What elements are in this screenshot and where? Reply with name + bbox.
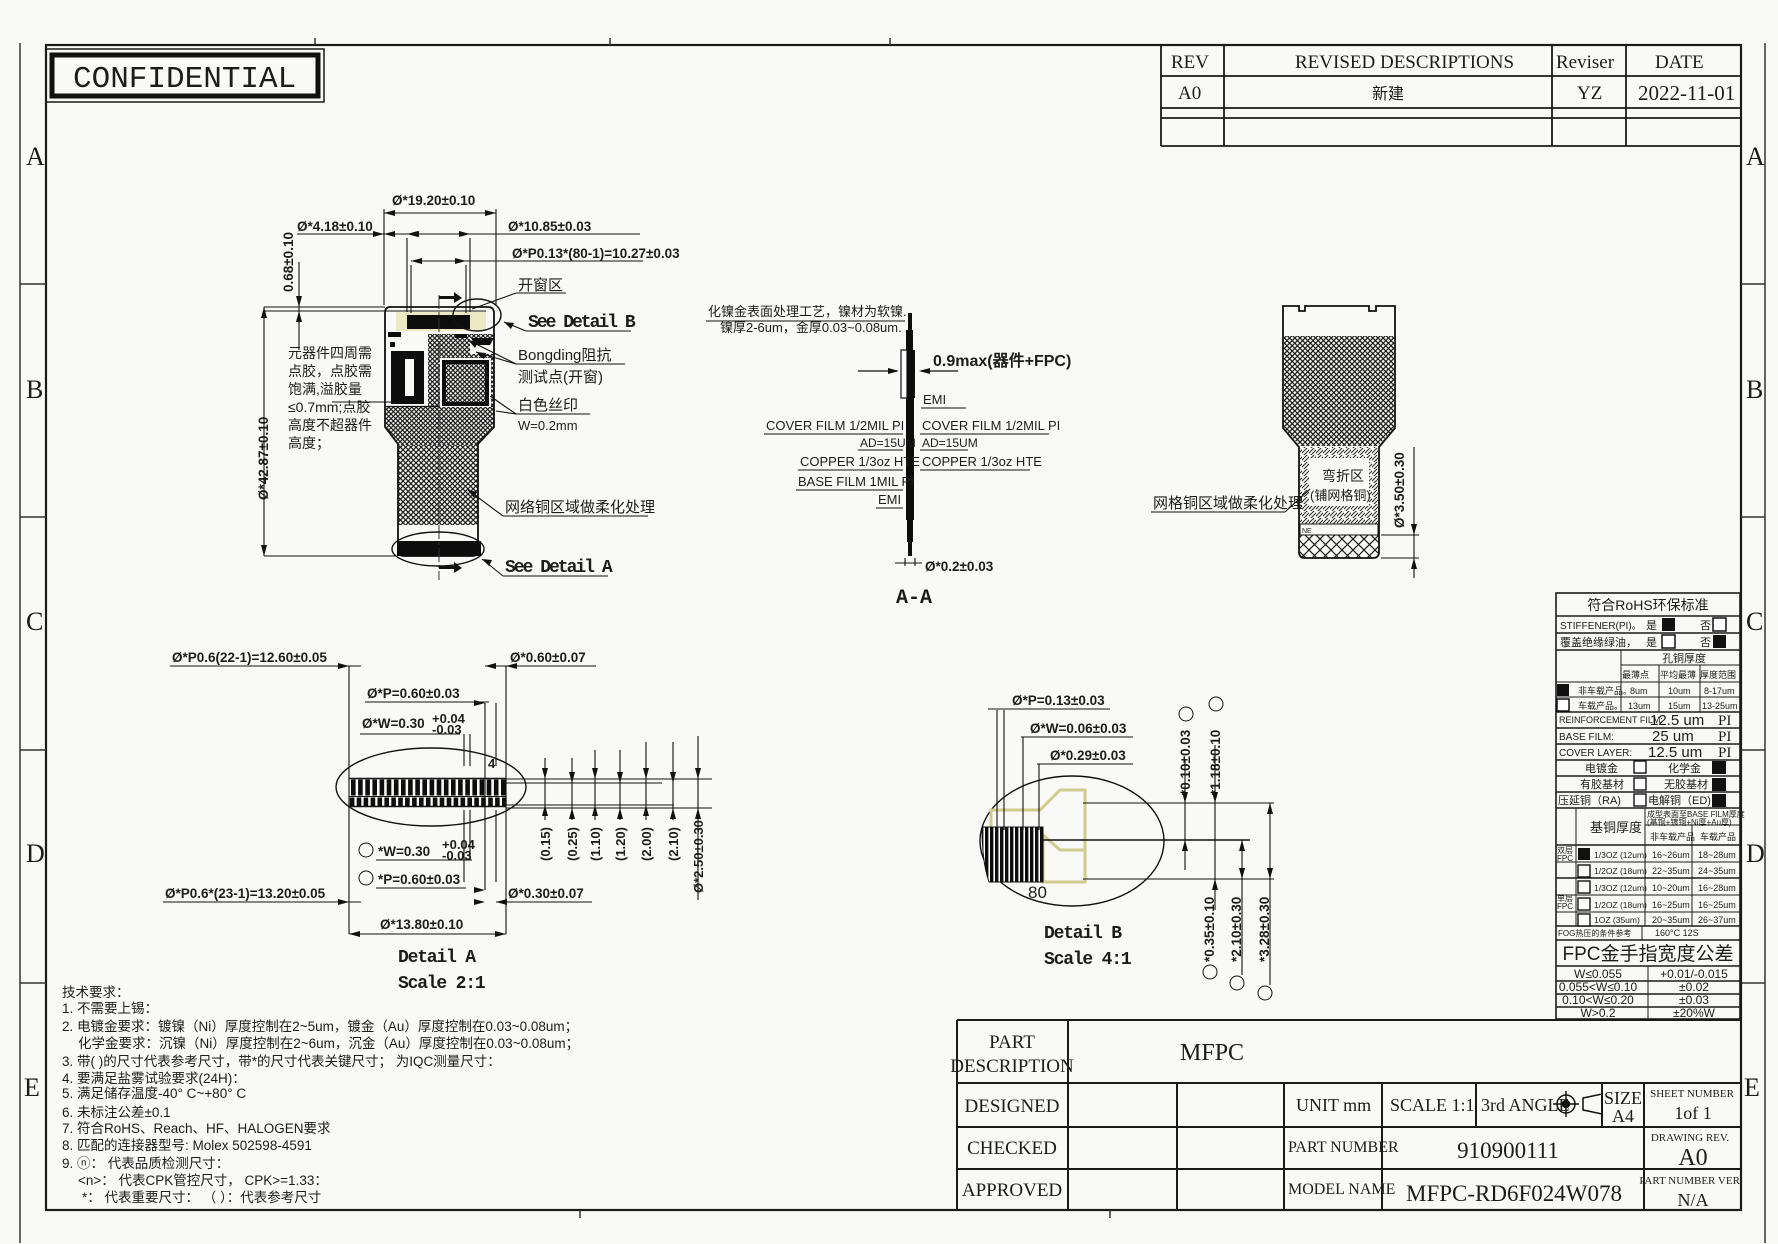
svg-text:10~20um: 10~20um bbox=[1652, 883, 1690, 893]
svg-text:DRAWING REV.: DRAWING REV. bbox=[1651, 1132, 1730, 1144]
svg-text:Ø*W=0.30: Ø*W=0.30 bbox=[362, 716, 425, 731]
svg-text:COPPER 1/3oz HTE: COPPER 1/3oz HTE bbox=[922, 454, 1042, 469]
svg-text:YZ: YZ bbox=[1577, 83, 1602, 104]
svg-text:9. ⓝ： 代表品质检测尺寸：: 9. ⓝ： 代表品质检测尺寸： bbox=[62, 1156, 229, 1171]
svg-text:测试点(开窗): 测试点(开窗) bbox=[518, 368, 603, 386]
svg-text:是: 是 bbox=[1646, 619, 1657, 632]
svg-text:*0.35±0.10: *0.35±0.10 bbox=[1202, 897, 1217, 962]
svg-text:Scale 2:1: Scale 2:1 bbox=[398, 974, 486, 994]
svg-text:12.5 um: 12.5 um bbox=[1650, 712, 1704, 729]
svg-text:See Detail B: See Detail B bbox=[528, 313, 636, 333]
svg-text:Detail A: Detail A bbox=[398, 948, 476, 968]
svg-text:否: 否 bbox=[1700, 637, 1711, 649]
svg-text:电解铜（ED): 电解铜（ED) bbox=[1648, 793, 1711, 807]
svg-text:See Detail A: See Detail A bbox=[505, 558, 613, 578]
svg-text:Ø*0.60±0.07: Ø*0.60±0.07 bbox=[510, 650, 586, 665]
svg-text:MFPC-RD6F024W078: MFPC-RD6F024W078 bbox=[1406, 1181, 1622, 1206]
svg-text:Ø*13.80±0.10: Ø*13.80±0.10 bbox=[380, 917, 463, 932]
svg-text:20~35um: 20~35um bbox=[1652, 915, 1690, 925]
svg-text:符合RoHS环保标准: 符合RoHS环保标准 bbox=[1587, 597, 1708, 613]
svg-text:BASE FILM 1MIL PI: BASE FILM 1MIL PI bbox=[798, 474, 914, 489]
svg-text:0.9max(器件+FPC): 0.9max(器件+FPC) bbox=[933, 351, 1071, 370]
svg-text:1/2OZ (18um): 1/2OZ (18um) bbox=[1594, 866, 1647, 876]
svg-text:APPROVED: APPROVED bbox=[962, 1180, 1062, 1201]
svg-text:A: A bbox=[26, 142, 45, 171]
svg-text:化学金: 化学金 bbox=[1668, 761, 1701, 775]
svg-text:8. 匹配的连接器型号: Molex 502598-4591: 8. 匹配的连接器型号: Molex 502598-4591 bbox=[62, 1137, 312, 1153]
svg-text:REVISED DESCRIPTIONS: REVISED DESCRIPTIONS bbox=[1295, 52, 1514, 73]
svg-text:4. 要满足盐雾试验要求(24H)：: 4. 要满足盐雾试验要求(24H)： bbox=[62, 1071, 246, 1086]
svg-text:5. 满足储存温度-40° C~+80° C: 5. 满足储存温度-40° C~+80° C bbox=[62, 1086, 246, 1101]
svg-text:(1.10): (1.10) bbox=[588, 827, 603, 861]
svg-text:8um: 8um bbox=[1630, 686, 1648, 696]
svg-text:(1.20): (1.20) bbox=[613, 827, 628, 861]
svg-text:技术要求：: 技术要求： bbox=[62, 985, 130, 1000]
svg-text:PART NUMBER VER.: PART NUMBER VER. bbox=[1639, 1175, 1743, 1187]
svg-text:*3.28±0.30: *3.28±0.30 bbox=[1257, 897, 1272, 962]
svg-text:Ø*3.50±0.30: Ø*3.50±0.30 bbox=[1392, 452, 1407, 528]
svg-text:(0.25): (0.25) bbox=[565, 827, 580, 861]
svg-text:6. 未标注公差±0.1: 6. 未标注公差±0.1 bbox=[62, 1105, 171, 1120]
svg-text:Detail B: Detail B bbox=[1044, 924, 1122, 944]
svg-text:化学金要求：沉镍（Ni）厚度控制在2~6um，沉金（Au）厚: 化学金要求：沉镍（Ni）厚度控制在2~6um，沉金（Au）厚度控制在0.03~0… bbox=[78, 1036, 579, 1052]
svg-text:≤0.7mm;点胶: ≤0.7mm;点胶 bbox=[288, 399, 370, 415]
svg-text:910900111: 910900111 bbox=[1457, 1138, 1559, 1163]
svg-text:PI: PI bbox=[1718, 729, 1731, 745]
svg-text:最薄点: 最薄点 bbox=[1622, 669, 1649, 680]
svg-text:Ø*0.2±0.03: Ø*0.2±0.03 bbox=[925, 559, 994, 574]
svg-text:1. 不需要上锡：: 1. 不需要上锡： bbox=[62, 1001, 158, 1016]
svg-text:SHEET NUMBER: SHEET NUMBER bbox=[1650, 1088, 1734, 1100]
svg-text:22~35um: 22~35um bbox=[1652, 866, 1690, 876]
svg-text:Ø*P0.13*(80-1)=10.27±0.03: Ø*P0.13*(80-1)=10.27±0.03 bbox=[512, 246, 680, 261]
svg-text:COVER LAYER:: COVER LAYER: bbox=[1559, 748, 1632, 759]
svg-text:UNIT mm: UNIT mm bbox=[1296, 1095, 1371, 1115]
svg-text:弯折区: 弯折区 bbox=[1322, 468, 1364, 484]
svg-text:饱满,溢胶量: 饱满,溢胶量 bbox=[288, 381, 362, 397]
svg-text:非车载产品: 非车载产品 bbox=[1650, 831, 1695, 842]
svg-text:7. 符合RoHS、Reach、HF、HALOGEN要求: 7. 符合RoHS、Reach、HF、HALOGEN要求 bbox=[62, 1121, 331, 1136]
svg-text:±0.02: ±0.02 bbox=[1679, 980, 1709, 994]
svg-text:有胶基材: 有胶基材 bbox=[1580, 777, 1624, 791]
svg-text:新建: 新建 bbox=[1372, 85, 1404, 103]
svg-text:非车载产品。: 非车载产品。 bbox=[1578, 685, 1632, 696]
svg-text:8-17um: 8-17um bbox=[1704, 686, 1735, 696]
svg-text:网络铜区域做柔化处理: 网络铜区域做柔化处理 bbox=[505, 499, 655, 516]
svg-text:COVER FILM 1/2MIL PI: COVER FILM 1/2MIL PI bbox=[922, 418, 1060, 433]
svg-text:Ø*0.29±0.03: Ø*0.29±0.03 bbox=[1050, 748, 1126, 763]
svg-text:基铜厚度: 基铜厚度 bbox=[1590, 820, 1642, 835]
svg-text:车载产品: 车载产品 bbox=[1700, 831, 1736, 842]
svg-text:Ø*P=0.13±0.03: Ø*P=0.13±0.03 bbox=[1012, 693, 1105, 708]
svg-text:白色丝印: 白色丝印 bbox=[518, 397, 578, 414]
svg-text:13-25um: 13-25um bbox=[1702, 701, 1738, 711]
svg-text:A4: A4 bbox=[1612, 1106, 1634, 1126]
svg-text:REINFORCEMENT FILM:: REINFORCEMENT FILM: bbox=[1559, 715, 1663, 725]
svg-text:(2.10): (2.10) bbox=[666, 827, 681, 861]
svg-text:高度；: 高度； bbox=[288, 435, 330, 452]
svg-text:3. 带( )的尺寸代表参考尺寸，带*的尺寸代表关键尺寸；: 3. 带( )的尺寸代表参考尺寸，带*的尺寸代表关键尺寸； 为IQC测量尺寸： bbox=[62, 1053, 501, 1070]
svg-text:N/A: N/A bbox=[1678, 1190, 1709, 1210]
svg-text:PI: PI bbox=[1718, 745, 1731, 761]
svg-text:+0.01/-0.015: +0.01/-0.015 bbox=[1660, 967, 1728, 981]
svg-text:Ø*W=0.06±0.03: Ø*W=0.06±0.03 bbox=[1030, 721, 1127, 736]
svg-text:1/3OZ (12um): 1/3OZ (12um) bbox=[1594, 850, 1647, 860]
svg-text:Ø*P=0.60±0.03: Ø*P=0.60±0.03 bbox=[367, 686, 460, 701]
svg-text:REV: REV bbox=[1171, 52, 1209, 73]
svg-text:Reviser: Reviser bbox=[1556, 52, 1615, 73]
svg-text:无胶基材: 无胶基材 bbox=[1664, 777, 1708, 791]
svg-text:CONFIDENTIAL: CONFIDENTIAL bbox=[73, 62, 296, 97]
svg-text:16~25um: 16~25um bbox=[1652, 900, 1690, 910]
svg-text:(铺网格铜): (铺网格铜) bbox=[1310, 488, 1371, 503]
svg-text:Ø*0.30±0.07: Ø*0.30±0.07 bbox=[508, 886, 584, 901]
svg-text:Scale 4:1: Scale 4:1 bbox=[1044, 950, 1132, 970]
svg-text:DESCRIPTION: DESCRIPTION bbox=[950, 1056, 1074, 1077]
svg-text:PART NUMBER: PART NUMBER bbox=[1288, 1139, 1399, 1156]
svg-text:E: E bbox=[24, 1073, 40, 1102]
svg-text:PART: PART bbox=[989, 1032, 1035, 1053]
svg-text:FOG热压的条件参考: FOG热压的条件参考 bbox=[1558, 928, 1631, 938]
svg-text:(基铜+镀铜+Ni厚+Au厚): (基铜+镀铜+Ni厚+Au厚) bbox=[1647, 817, 1732, 827]
svg-text:Bongding阻抗: Bongding阻抗 bbox=[518, 347, 611, 364]
svg-text:化镍金表面处理工艺，镍材为软镍.: 化镍金表面处理工艺，镍材为软镍. bbox=[708, 304, 907, 319]
svg-text:SIZE: SIZE bbox=[1604, 1088, 1642, 1108]
svg-text:(0.15): (0.15) bbox=[538, 827, 553, 861]
svg-text:高度不超器件: 高度不超器件 bbox=[288, 417, 372, 433]
svg-text:4: 4 bbox=[488, 756, 496, 771]
svg-text:PI: PI bbox=[1718, 713, 1731, 729]
svg-text:电镀金: 电镀金 bbox=[1585, 761, 1618, 775]
svg-text:D: D bbox=[1746, 839, 1765, 868]
svg-text:Ø*10.85±0.03: Ø*10.85±0.03 bbox=[508, 219, 592, 234]
svg-text:车载产品。: 车载产品。 bbox=[1578, 700, 1623, 711]
svg-text:A0: A0 bbox=[1678, 1145, 1707, 1171]
svg-text:15um: 15um bbox=[1668, 701, 1691, 711]
svg-text:16~26um: 16~26um bbox=[1652, 850, 1690, 860]
svg-text:开窗区: 开窗区 bbox=[518, 276, 563, 294]
svg-text:Ø*2.50±0.30: Ø*2.50±0.30 bbox=[691, 820, 706, 893]
svg-text:STIFFENER(PI)。: STIFFENER(PI)。 bbox=[1560, 621, 1642, 632]
svg-text:A-A: A-A bbox=[896, 587, 932, 610]
svg-text:EMI: EMI bbox=[878, 492, 901, 507]
svg-text:24~35um: 24~35um bbox=[1698, 866, 1736, 876]
svg-text:26~37um: 26~37um bbox=[1698, 915, 1736, 925]
svg-text:SCALE 1:1: SCALE 1:1 bbox=[1390, 1095, 1475, 1115]
svg-text:DESIGNED: DESIGNED bbox=[965, 1096, 1060, 1117]
svg-text:*W=0.30: *W=0.30 bbox=[378, 844, 430, 859]
svg-text:A0: A0 bbox=[1178, 83, 1201, 104]
svg-text:18~28um: 18~28um bbox=[1698, 850, 1736, 860]
svg-text:-0.03: -0.03 bbox=[442, 848, 472, 863]
svg-text:16~25um: 16~25um bbox=[1698, 900, 1736, 910]
svg-text:FPC金手指宽度公差: FPC金手指宽度公差 bbox=[1562, 943, 1733, 965]
svg-text:平均最薄: 平均最薄 bbox=[1660, 669, 1696, 680]
svg-text:是: 是 bbox=[1646, 636, 1657, 649]
svg-text:-0.03: -0.03 bbox=[432, 722, 462, 737]
svg-text:0.68±0.10: 0.68±0.10 bbox=[281, 232, 296, 292]
svg-text:16~28um: 16~28um bbox=[1698, 883, 1736, 893]
svg-text:B: B bbox=[26, 375, 43, 404]
svg-text:A: A bbox=[1746, 142, 1765, 171]
svg-text:25 um: 25 um bbox=[1652, 728, 1694, 745]
svg-text:<n>： 代表CPK管控尺寸， CPK>=1.33：: <n>： 代表CPK管控尺寸， CPK>=1.33： bbox=[78, 1173, 328, 1188]
svg-text:12.5 um: 12.5 um bbox=[1648, 744, 1702, 761]
svg-text:2. 电镀金要求：镀镍（Ni）厚度控制在2~5um，镀金（A: 2. 电镀金要求：镀镍（Ni）厚度控制在2~5um，镀金（Au）厚度控制在0.0… bbox=[62, 1018, 578, 1035]
svg-text:1of 1: 1of 1 bbox=[1674, 1103, 1712, 1123]
svg-text:W>0.2: W>0.2 bbox=[1580, 1006, 1615, 1020]
svg-text:1/2OZ (18um): 1/2OZ (18um) bbox=[1594, 900, 1647, 910]
svg-text:DATE: DATE bbox=[1655, 52, 1704, 73]
svg-text:FPC: FPC bbox=[1557, 902, 1573, 911]
svg-text:孔铜厚度: 孔铜厚度 bbox=[1662, 651, 1706, 665]
svg-text:否: 否 bbox=[1700, 620, 1711, 632]
svg-text:0.055<W≤0.10: 0.055<W≤0.10 bbox=[1559, 980, 1638, 994]
svg-text:*： 代表重要尺寸： （ ）：代表参考尺寸: *： 代表重要尺寸： （ ）：代表参考尺寸 bbox=[82, 1189, 321, 1205]
svg-text:COVER FILM 1/2MIL PI: COVER FILM 1/2MIL PI bbox=[766, 418, 904, 433]
svg-text:Ø*P0.6*(23-1)=13.20±0.05: Ø*P0.6*(23-1)=13.20±0.05 bbox=[165, 886, 326, 901]
svg-text:0.10<W≤0.20: 0.10<W≤0.20 bbox=[1562, 993, 1634, 1007]
svg-text:(2.00): (2.00) bbox=[639, 827, 654, 861]
svg-text:C: C bbox=[26, 607, 43, 636]
svg-text:E: E bbox=[1744, 1073, 1760, 1102]
svg-text:网格铜区域做柔化处理: 网格铜区域做柔化处理 bbox=[1153, 495, 1303, 512]
svg-text:AD=15UM: AD=15UM bbox=[860, 436, 916, 450]
svg-text:W=0.2mm: W=0.2mm bbox=[518, 418, 578, 433]
svg-text:D: D bbox=[26, 839, 45, 868]
svg-text:13um: 13um bbox=[1628, 701, 1651, 711]
svg-text:W≤0.055: W≤0.055 bbox=[1574, 967, 1622, 981]
svg-text:FPC: FPC bbox=[1557, 854, 1573, 863]
svg-text:Ø*P0.6(22-1)=12.60±0.05: Ø*P0.6(22-1)=12.60±0.05 bbox=[172, 650, 327, 665]
svg-text:MODEL NAME: MODEL NAME bbox=[1288, 1181, 1395, 1198]
svg-text:压延铜（RA): 压延铜（RA) bbox=[1558, 793, 1621, 807]
svg-text:*2.10±0.30: *2.10±0.30 bbox=[1229, 897, 1244, 962]
svg-text:厚度范围: 厚度范围 bbox=[1700, 669, 1736, 680]
svg-text:MFPC: MFPC bbox=[1180, 1040, 1244, 1066]
svg-text:±0.03: ±0.03 bbox=[1679, 993, 1709, 1007]
svg-text:Ø*19.20±0.10: Ø*19.20±0.10 bbox=[392, 193, 475, 208]
svg-text:±20%W: ±20%W bbox=[1673, 1006, 1716, 1020]
svg-text:镍厚2-6um，金厚0.03~0.08um.: 镍厚2-6um，金厚0.03~0.08um. bbox=[720, 320, 902, 335]
svg-text:BASE FILM:: BASE FILM: bbox=[1559, 732, 1614, 743]
svg-text:1OZ (35um): 1OZ (35um) bbox=[1594, 915, 1640, 925]
svg-text:80: 80 bbox=[1028, 883, 1047, 902]
svg-text:*1.18±0.10: *1.18±0.10 bbox=[1208, 730, 1223, 795]
svg-text:AD=15UM: AD=15UM bbox=[922, 436, 978, 450]
svg-text:CHECKED: CHECKED bbox=[967, 1138, 1057, 1159]
svg-text:COPPER 1/3oz HTE: COPPER 1/3oz HTE bbox=[800, 454, 920, 469]
svg-text:1/3OZ (12um): 1/3OZ (12um) bbox=[1594, 883, 1647, 893]
svg-text:10um: 10um bbox=[1668, 686, 1691, 696]
svg-text:点胶，点胶需: 点胶，点胶需 bbox=[288, 363, 372, 379]
svg-text:Ø*4.18±0.10: Ø*4.18±0.10 bbox=[297, 219, 373, 234]
svg-text:2022-11-01: 2022-11-01 bbox=[1638, 81, 1735, 105]
svg-text:*0.10±0.03: *0.10±0.03 bbox=[1178, 729, 1193, 795]
svg-text:B: B bbox=[1746, 375, 1763, 404]
svg-text:NE: NE bbox=[1302, 528, 1312, 535]
svg-text:C: C bbox=[1746, 607, 1763, 636]
svg-text:3rd ANGLE: 3rd ANGLE bbox=[1481, 1095, 1570, 1115]
svg-text:*P=0.60±0.03: *P=0.60±0.03 bbox=[378, 872, 461, 887]
svg-text:EMI: EMI bbox=[923, 392, 946, 407]
svg-text:160°C 12S: 160°C 12S bbox=[1655, 928, 1699, 938]
svg-text:元器件四周需: 元器件四周需 bbox=[288, 345, 372, 361]
svg-text:覆盖绝缘绿油，: 覆盖绝缘绿油， bbox=[1560, 635, 1637, 649]
